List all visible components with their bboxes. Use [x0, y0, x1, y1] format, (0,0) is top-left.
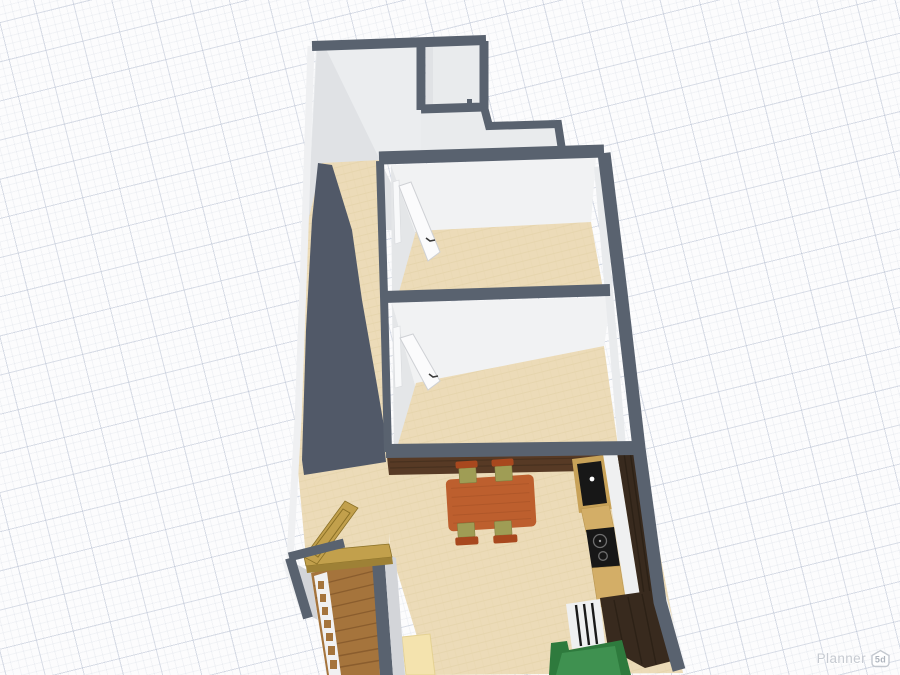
small-room-west-face [426, 46, 433, 108]
small-top-room[interactable] [426, 44, 483, 108]
watermark-brand: Planner [817, 651, 866, 666]
top-outer-wall[interactable] [312, 40, 486, 46]
floorplan-scene [0, 0, 900, 675]
corridor[interactable] [298, 160, 391, 558]
cooktop[interactable] [586, 527, 620, 569]
small-room-interior [426, 44, 483, 108]
appliance-front[interactable] [566, 599, 605, 649]
rooms-bottom-wall[interactable] [386, 448, 640, 451]
burner-dot [599, 540, 601, 542]
watermark: Planner 5d [817, 649, 892, 668]
faucet-dot [590, 477, 595, 482]
rooms-divider-wall[interactable] [384, 290, 610, 297]
badge-label: 5d [875, 655, 886, 665]
watermark-5d-badge: 5d [869, 649, 892, 668]
midsection-top-wall[interactable] [379, 151, 604, 158]
planner-3d-canvas[interactable]: Planner 5d [0, 0, 900, 675]
door-mat[interactable] [402, 634, 435, 675]
dining-table[interactable] [446, 474, 537, 531]
